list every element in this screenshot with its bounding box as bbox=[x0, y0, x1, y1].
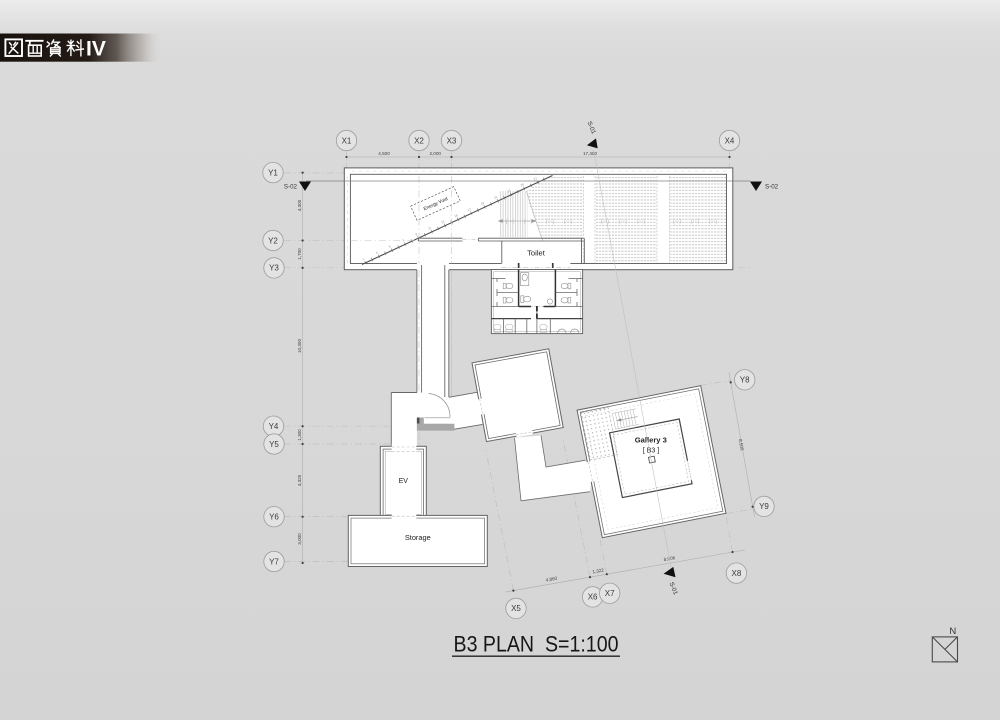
svg-text:Y6: Y6 bbox=[269, 513, 279, 522]
svg-text:X5: X5 bbox=[511, 604, 521, 613]
svg-text:N: N bbox=[949, 626, 956, 637]
svg-text:4,300: 4,300 bbox=[297, 199, 302, 211]
svg-text:(◦◦): (◦◦) bbox=[709, 219, 717, 225]
svg-text:Y3: Y3 bbox=[269, 264, 279, 273]
svg-text:Y8: Y8 bbox=[740, 376, 750, 385]
svg-text:X2: X2 bbox=[414, 136, 424, 145]
svg-text:3,000: 3,000 bbox=[297, 533, 302, 545]
svg-text:(◦◦): (◦◦) bbox=[546, 219, 554, 225]
svg-text:4,860: 4,860 bbox=[545, 576, 558, 583]
svg-text:IV: IV bbox=[86, 37, 106, 60]
svg-text:X8: X8 bbox=[732, 569, 742, 578]
svg-text:S-01: S-01 bbox=[585, 120, 597, 135]
svg-text:Y4: Y4 bbox=[269, 422, 279, 431]
svg-text:X7: X7 bbox=[605, 589, 615, 598]
svg-text:8,500: 8,500 bbox=[738, 439, 745, 452]
svg-text:Gallery 3: Gallery 3 bbox=[635, 436, 667, 445]
svg-text:Y7: Y7 bbox=[269, 557, 279, 566]
svg-text:4,325: 4,325 bbox=[297, 474, 302, 486]
svg-text:Y1: Y1 bbox=[268, 168, 278, 177]
svg-text:(◦◦): (◦◦) bbox=[673, 219, 681, 225]
svg-text:Y2: Y2 bbox=[268, 236, 278, 245]
svg-text:(◦◦): (◦◦) bbox=[637, 219, 645, 225]
svg-text:[ B3 ]: [ B3 ] bbox=[643, 448, 659, 455]
svg-text:S-01: S-01 bbox=[667, 581, 679, 596]
svg-text:17,400: 17,400 bbox=[583, 151, 597, 156]
svg-text:(◦◦): (◦◦) bbox=[601, 219, 609, 225]
svg-text:1,300: 1,300 bbox=[297, 429, 302, 441]
svg-text:Y5: Y5 bbox=[269, 440, 279, 449]
svg-text:S-02: S-02 bbox=[765, 184, 779, 191]
svg-text:EV: EV bbox=[399, 478, 409, 485]
svg-text:X1: X1 bbox=[342, 136, 352, 145]
svg-text:Storage: Storage bbox=[405, 533, 431, 542]
svg-text:1,322: 1,322 bbox=[592, 567, 605, 574]
svg-text:Toilet: Toilet bbox=[527, 248, 546, 257]
svg-text:B3 PLAN S=1:100: B3 PLAN S=1:100 bbox=[454, 631, 619, 656]
svg-text:10,300: 10,300 bbox=[297, 339, 302, 353]
svg-text:X4: X4 bbox=[725, 136, 735, 145]
svg-text:1,700: 1,700 bbox=[297, 248, 302, 260]
svg-text:S-02: S-02 bbox=[284, 184, 298, 191]
svg-text:X6: X6 bbox=[588, 593, 598, 602]
svg-text:4,500: 4,500 bbox=[378, 151, 390, 156]
svg-text:(◦◦): (◦◦) bbox=[691, 219, 699, 225]
svg-text:2,000: 2,000 bbox=[429, 151, 441, 156]
svg-text:Y9: Y9 bbox=[759, 502, 769, 511]
svg-text:(◦◦): (◦◦) bbox=[564, 219, 572, 225]
svg-text:(◦◦): (◦◦) bbox=[619, 219, 627, 225]
svg-text:X3: X3 bbox=[447, 136, 457, 145]
